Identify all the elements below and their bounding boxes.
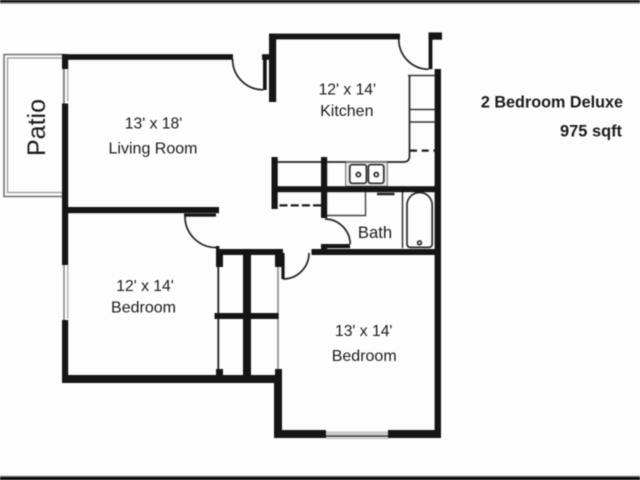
svg-text:Bedroom: Bedroom xyxy=(332,348,397,365)
svg-text:12' x 14': 12' x 14' xyxy=(319,82,376,99)
svg-text:12' x 14': 12' x 14' xyxy=(116,278,173,295)
svg-text:Bedroom: Bedroom xyxy=(111,300,176,317)
svg-text:Bath: Bath xyxy=(358,223,392,242)
svg-text:975 sqft: 975 sqft xyxy=(560,123,622,141)
svg-text:Kitchen: Kitchen xyxy=(320,103,373,120)
svg-text:13' x 14': 13' x 14' xyxy=(335,323,392,340)
svg-text:Living Room: Living Room xyxy=(109,141,198,158)
svg-text:Patio: Patio xyxy=(23,99,51,156)
svg-text:13' x 18': 13' x 18' xyxy=(125,116,182,133)
svg-text:2 Bedroom Deluxe: 2 Bedroom Deluxe xyxy=(481,94,623,112)
